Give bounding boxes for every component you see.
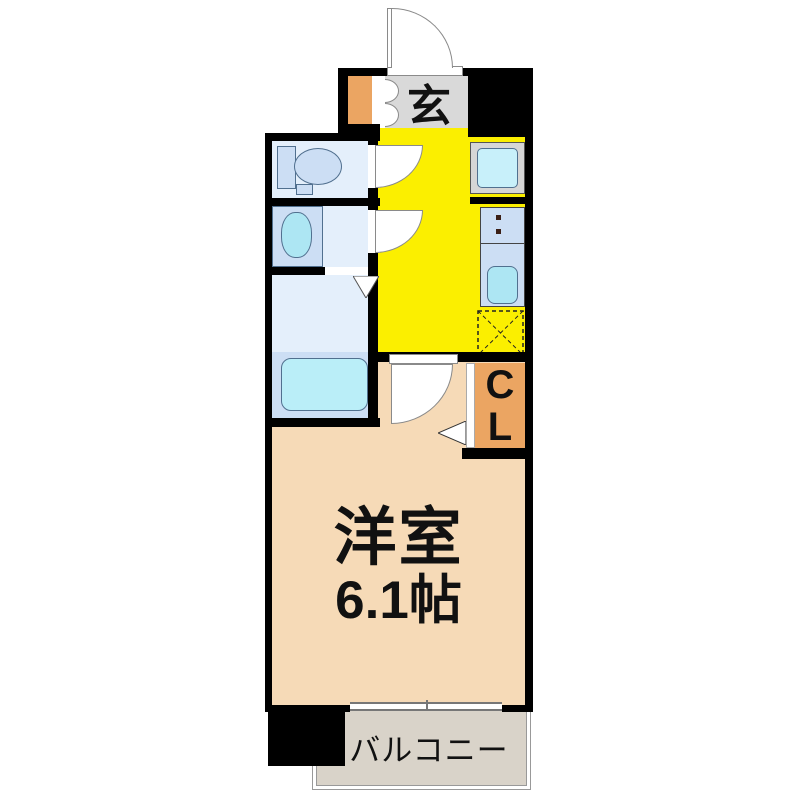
stove-burner-icon [496, 215, 501, 220]
bathtub-icon [281, 358, 368, 411]
wall [502, 705, 533, 712]
closet-label: C L [475, 363, 525, 448]
wall [265, 418, 380, 427]
closet-label-c: C [486, 364, 515, 406]
closet-door-strip [466, 363, 475, 448]
floor-plan: バルコニー 洋室 6.1帖 玄 C L [0, 0, 800, 800]
washing-machine-icon [477, 148, 518, 188]
wall [265, 198, 380, 206]
entrance-side-block [348, 76, 372, 128]
wall [525, 68, 533, 712]
stove-burner-icon [496, 229, 501, 234]
washbasin-icon [281, 212, 312, 258]
entrance-label: 玄 [397, 76, 461, 128]
entrance-door-swing-icon [392, 8, 453, 68]
wall [338, 68, 348, 128]
window-center-tick [426, 700, 428, 711]
counter-divider [480, 243, 525, 244]
wall [265, 133, 380, 141]
refrigerator-space-icon [477, 310, 524, 356]
wall [468, 68, 533, 137]
entrance-step [372, 76, 385, 128]
main-room-door-leaf-icon [389, 354, 458, 364]
bathroom-door-opening [325, 267, 368, 275]
kitchen-sink-icon [487, 266, 518, 304]
toilet-bowl-icon [294, 148, 342, 185]
wall [265, 267, 325, 275]
closet-folding-door-icon [438, 421, 466, 445]
bathroom-folding-door-icon [353, 276, 379, 298]
balcony-label: バルコニー [336, 726, 522, 768]
main-room-size: 6.1帖 [335, 572, 462, 629]
main-room-name: 洋室 [334, 504, 464, 572]
wall [268, 705, 345, 766]
main-room-label: 洋室 6.1帖 [272, 492, 525, 642]
closet-label-l: L [488, 406, 512, 448]
wall [470, 197, 533, 204]
toilet-paper-holder-icon [296, 184, 313, 195]
wall [462, 448, 533, 459]
